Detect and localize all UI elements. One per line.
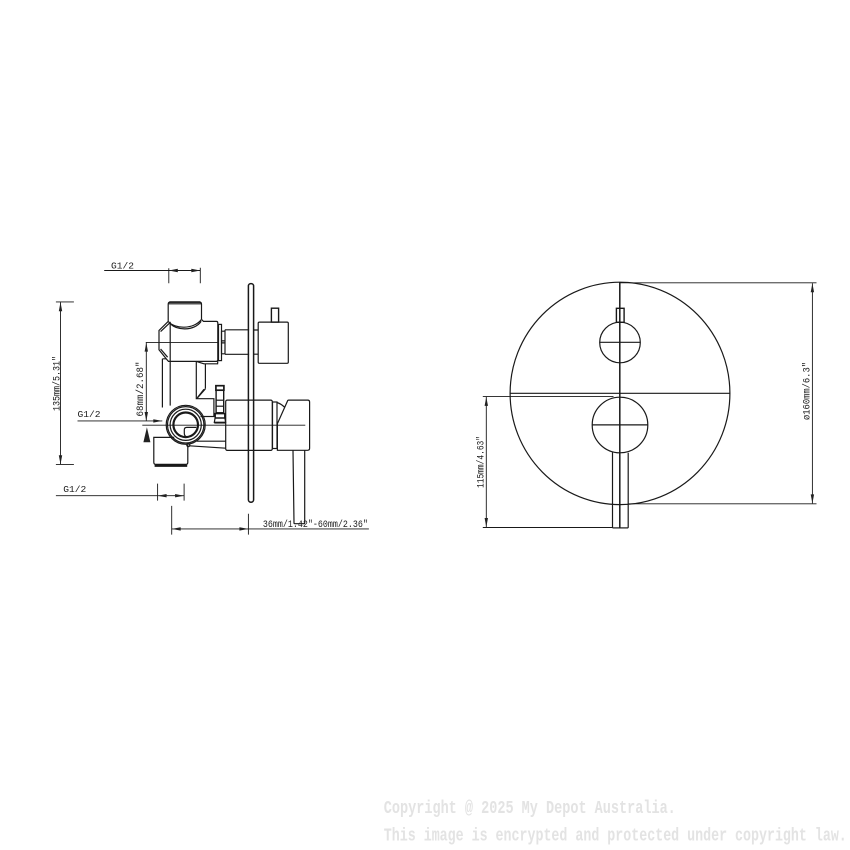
svg-text:This image is encrypted and pr: This image is encrypted and protected un…	[384, 827, 847, 847]
svg-text:36mm/1.42"-60mm/2.36": 36mm/1.42"-60mm/2.36"	[263, 519, 368, 531]
svg-text:135mm/5.31": 135mm/5.31"	[51, 356, 63, 411]
svg-text:ø160mm/6.3": ø160mm/6.3"	[801, 362, 813, 420]
svg-text:Copyright @ 2025 My Depot Aust: Copyright @ 2025 My Depot Australia.	[384, 799, 676, 819]
svg-text:G1/2: G1/2	[78, 409, 101, 420]
svg-text:115mm/4.63": 115mm/4.63"	[476, 436, 488, 488]
svg-text:G1/2: G1/2	[63, 484, 86, 495]
svg-text:68mm/2.68": 68mm/2.68"	[135, 362, 147, 417]
svg-text:G1/2: G1/2	[111, 262, 134, 272]
